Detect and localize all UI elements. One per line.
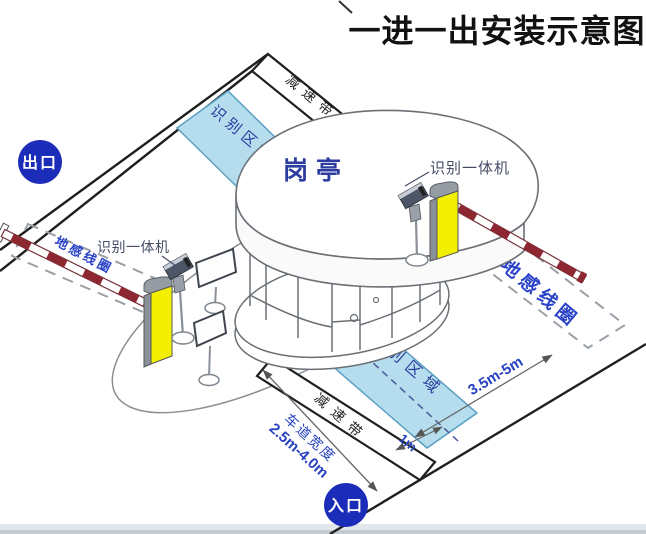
- gate-right-side: [430, 198, 437, 261]
- bottom-strip: [0, 524, 646, 530]
- entrance-badge: 入口: [324, 483, 368, 527]
- camera-right-bracket: [409, 204, 421, 222]
- sign-board-2-pole: [209, 346, 210, 378]
- entrance-badge-label: 入口: [328, 497, 364, 515]
- page-title: 一进一出安装示意图: [348, 13, 645, 49]
- gate-left-body: [151, 286, 172, 364]
- gate-right-body: [437, 191, 458, 259]
- exit-badge: 出口: [18, 140, 62, 184]
- camera-left-label: 识别一体机: [97, 239, 170, 255]
- camera-right-label: 识别一体机: [430, 160, 510, 177]
- bottom-strip-dark: [0, 530, 646, 534]
- gate-left-side: [144, 293, 151, 367]
- sign-board-2-base: [199, 375, 219, 386]
- barrier-gate-left: [144, 277, 172, 367]
- barrier-gate-right: [430, 182, 458, 261]
- booth-roof-top: [236, 110, 538, 259]
- camera-right-base: [406, 254, 428, 266]
- exit-badge-label: 出口: [22, 153, 58, 172]
- camera-left-base: [172, 332, 194, 344]
- installation-diagram: 减速带 识别区域 识别区域 减速带 车道宽度 2.5m-4.0m 地感线圈 3.…: [0, 0, 646, 534]
- camera-right-pole: [416, 220, 417, 258]
- diagram-canvas: 减速带 识别区域 识别区域 减速带 车道宽度 2.5m-4.0m 地感线圈 3.…: [0, 0, 646, 534]
- booth-label: 岗亭: [283, 156, 349, 185]
